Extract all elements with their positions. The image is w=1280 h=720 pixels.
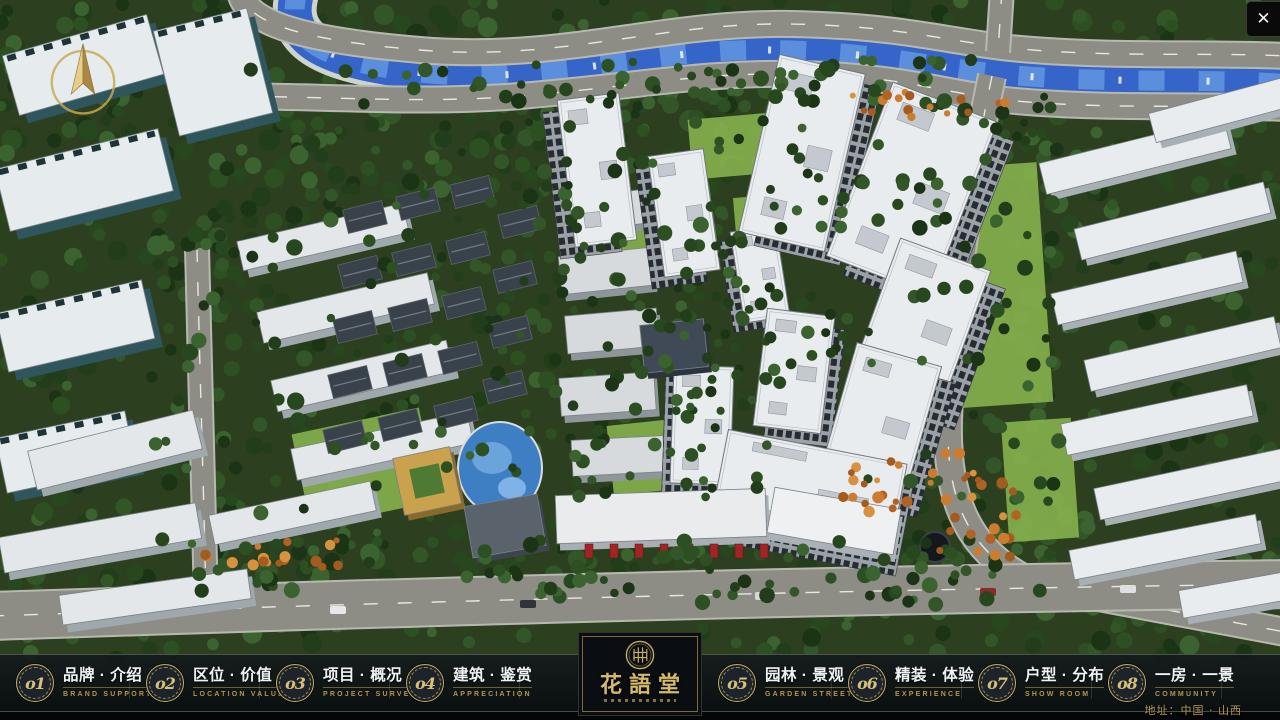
project-logo-title: 花語堂	[600, 673, 687, 697]
address-text: 地址：中国 · 山西	[1145, 702, 1243, 718]
nav-item-floorplan[interactable]: o7 户型 · 分布SHOW ROOM	[962, 655, 1092, 711]
nav-item-garden[interactable]: o5 园林 · 景观GARDEN STREET	[702, 655, 832, 711]
close-icon: ✕	[1256, 11, 1270, 28]
nav-badge-icon: o5	[718, 664, 756, 702]
presentation-window: ✕ o1 品牌 · 介绍BRAND SUPPORT o2 区位 · 价值LOCA…	[0, 0, 1280, 720]
logo-seal-icon	[623, 638, 657, 672]
logo-home-button[interactable]: 花語堂	[578, 632, 702, 716]
nav-label-zh: 一房 · 一景	[1155, 668, 1234, 688]
nav-item-architecture[interactable]: o4 建筑 · 鉴赏APPRECIATION	[390, 655, 520, 711]
compass-icon	[40, 36, 126, 122]
nav-item-interior[interactable]: o6 精装 · 体验EXPERIENCE	[832, 655, 962, 711]
nav-label-zh: 建筑 · 鉴赏	[453, 668, 532, 688]
nav-badge-icon: o6	[848, 664, 886, 702]
nav-badge-icon: o1	[16, 664, 54, 702]
nav-group-left: o1 品牌 · 介绍BRAND SUPPORT o2 区位 · 价值LOCATI…	[0, 654, 578, 712]
logo-subtitle-marks	[604, 699, 676, 702]
nav-item-project[interactable]: o3 项目 · 概况PROJECT SURVEY	[260, 655, 390, 711]
nav-label-en: COMMUNITY	[1155, 691, 1234, 698]
nav-badge-icon: o4	[406, 664, 444, 702]
masterplan-render[interactable]	[0, 0, 1280, 720]
nav-label-en: APPRECIATION	[453, 691, 532, 698]
nav-badge-icon: o3	[276, 664, 314, 702]
nav-item-location[interactable]: o2 区位 · 价值LOCATION VALUE	[130, 655, 260, 711]
nav-item-brand[interactable]: o1 品牌 · 介绍BRAND SUPPORT	[0, 655, 130, 711]
close-button[interactable]: ✕	[1246, 1, 1280, 37]
nav-badge-icon: o7	[978, 664, 1016, 702]
nav-badge-icon: o8	[1108, 664, 1146, 702]
nav-badge-icon: o2	[146, 664, 184, 702]
